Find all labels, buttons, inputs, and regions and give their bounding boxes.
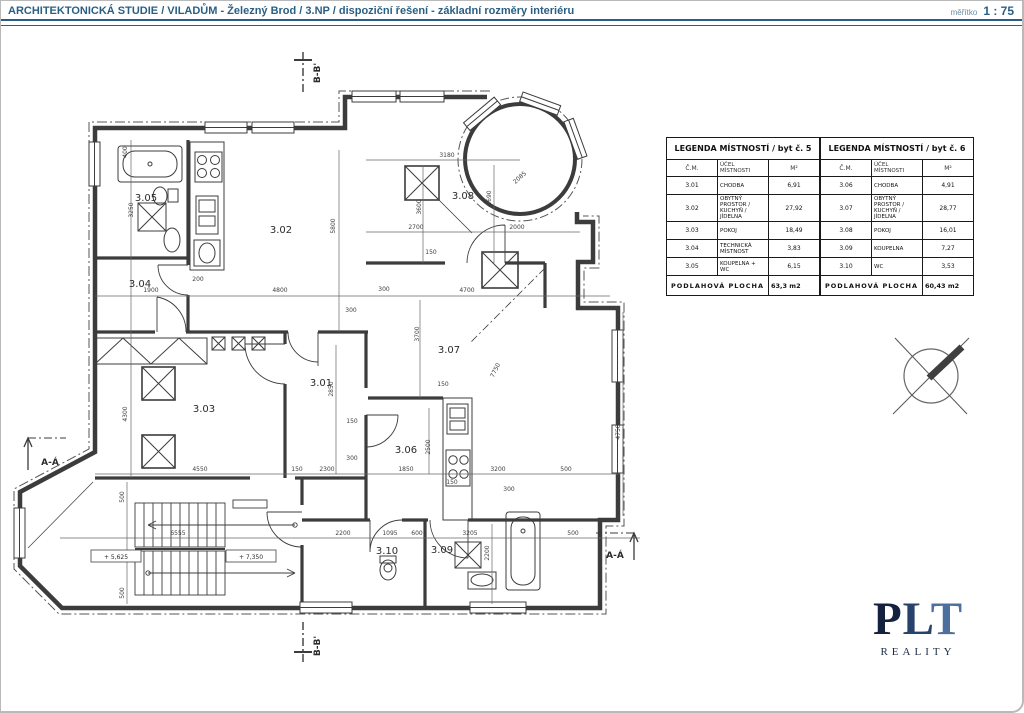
legend-row: 3.04TECHNICKÁ MÍSTNOST3,83 (667, 240, 820, 258)
washbasin (164, 228, 180, 252)
room-number: 3.02 (667, 195, 718, 222)
north-arrow (893, 338, 969, 414)
legend-col-m2: M² (923, 160, 974, 177)
dim-label: 150 (291, 466, 303, 473)
dim-label: 150 (446, 479, 458, 486)
room-area: 3,83 (769, 240, 820, 258)
level-label: + 7,350 (239, 554, 263, 561)
room-number: 3.05 (667, 258, 718, 276)
room-area: 6,15 (769, 258, 820, 276)
wardrobe (95, 338, 207, 364)
room-area: 18,49 (769, 222, 820, 240)
fixtures (95, 142, 545, 590)
dim-label: 2300 (319, 466, 334, 473)
legend-footer-label: PODLAHOVÁ PLOCHA (821, 276, 923, 296)
legend-col-use: ÚČEL MÍSTNOSTI (718, 160, 769, 177)
dim-label: 3205 (462, 530, 477, 537)
page: ARCHITEKTONICKÁ STUDIE / VILADŮM - Želez… (0, 0, 1024, 713)
room-area: 6,91 (769, 177, 820, 195)
room-label: 3.09 (431, 545, 453, 556)
dim-label: 150 (346, 418, 358, 425)
dim-label: 4800 (272, 287, 287, 294)
dim-label: 2700 (408, 224, 423, 231)
room-use: KOUPELNA (872, 240, 923, 258)
room-number: 3.10 (821, 258, 872, 276)
dim-label: 7750 (489, 362, 502, 379)
room-label: 3.08 (452, 191, 474, 202)
plt-logo: PLT REALITY (858, 594, 978, 658)
legend-col-use: ÚČEL MÍSTNOSTI (872, 160, 923, 177)
dim-label: 1900 (143, 287, 158, 294)
dim-label: 3700 (414, 326, 421, 341)
dim-label: 300 (346, 455, 358, 462)
dim-label: 6555 (170, 530, 185, 537)
legend-table-byt-5: LEGENDA MÍSTNOSTÍ / byt č. 5Č.M.ÚČEL MÍS… (666, 137, 820, 296)
dim-label: 5800 (330, 218, 337, 233)
logo-letter: L (903, 593, 931, 645)
legend-row: 3.03POKOJ18,49 (667, 222, 820, 240)
room-area: 3,53 (923, 258, 974, 276)
room-label: 3.07 (438, 345, 460, 356)
dim-label: 500 (119, 491, 126, 503)
room-use: CHODBA (872, 177, 923, 195)
room-area: 27,92 (769, 195, 820, 222)
legend-row: 3.05KOUPELNA + WC6,15 (667, 258, 820, 276)
dim-label: 4550 (192, 466, 207, 473)
dim-label: 500 (119, 587, 126, 599)
dim-label: 500 (560, 466, 572, 473)
legend-footer-value: 60,43 m2 (923, 276, 974, 296)
dim-label: 300 (345, 307, 357, 314)
dim-label: 4750 (615, 424, 622, 439)
legend-col-cm: Č.M. (821, 160, 872, 177)
dim-label: 2200 (335, 530, 350, 537)
room-number: 3.07 (821, 195, 872, 222)
dim-label: 2200 (484, 545, 491, 560)
room-legend: LEGENDA MÍSTNOSTÍ / byt č. 5Č.M.ÚČEL MÍS… (666, 137, 974, 296)
section-label: B-B' (313, 636, 323, 656)
dim-label: 400 (122, 146, 129, 158)
dim-label: 2850 (328, 381, 335, 396)
legend-row: 3.02OBYTNÝ PROSTOR / KUCHYŇ / JÍDELNA27,… (667, 195, 820, 222)
dim-label: 2000 (509, 224, 524, 231)
room-label: 3.10 (376, 546, 398, 557)
legend-row: 3.07OBYTNÝ PROSTOR / KUCHYŇ / JÍDELNA28,… (821, 195, 974, 222)
legend-row: 3.10WC3,53 (821, 258, 974, 276)
dim-label: 150 (437, 381, 449, 388)
dim-label: 3180 (439, 152, 454, 159)
plt-logo-text: PLT (858, 594, 978, 644)
dim-label: 600 (411, 530, 423, 537)
level-label: + 5,625 (104, 554, 128, 561)
legend-col-m2: M² (769, 160, 820, 177)
dim-label: 4700 (459, 287, 474, 294)
section-label: A-Á (606, 549, 624, 561)
room-number: 3.03 (667, 222, 718, 240)
room-use: KOUPELNA + WC (718, 258, 769, 276)
room-area: 28,77 (923, 195, 974, 222)
room-use: POKOJ (872, 222, 923, 240)
legend-col-cm: Č.M. (667, 160, 718, 177)
staircase (28, 482, 297, 595)
room-use: WC (872, 258, 923, 276)
room-label: 3.03 (193, 404, 215, 415)
room-use: CHODBA (718, 177, 769, 195)
section-label: B-B' (313, 63, 323, 83)
room-use: OBYTNÝ PROSTOR / KUCHYŇ / JÍDELNA (872, 195, 923, 222)
room-number: 3.06 (821, 177, 872, 195)
logo-letter: P (873, 593, 903, 645)
room-label: 3.06 (395, 445, 417, 456)
room-area: 16,01 (923, 222, 974, 240)
plt-logo-subtitle: REALITY (858, 646, 978, 658)
room-use: TECHNICKÁ MÍSTNOST (718, 240, 769, 258)
dim-label: 2690 (486, 190, 493, 205)
room-number: 3.01 (667, 177, 718, 195)
dim-label: 300 (503, 486, 515, 493)
dim-label: 3250 (128, 202, 135, 217)
legend-footer-label: PODLAHOVÁ PLOCHA (667, 276, 769, 296)
legend-row: 3.09KOUPELNA7,27 (821, 240, 974, 258)
room-number: 3.08 (821, 222, 872, 240)
legend-row: 3.01CHODBA6,91 (667, 177, 820, 195)
room-label: 3.05 (135, 193, 157, 204)
legend-row: 3.08POKOJ16,01 (821, 222, 974, 240)
room-label: 3.02 (270, 225, 292, 236)
dim-label: 2500 (425, 439, 432, 454)
legend-row: 3.06CHODBA4,91 (821, 177, 974, 195)
dim-label: 4300 (122, 406, 129, 421)
dim-label: 300 (378, 286, 390, 293)
dim-label: 3200 (490, 466, 505, 473)
legend-table-byt-6: LEGENDA MÍSTNOSTÍ / byt č. 6Č.M.ÚČEL MÍS… (820, 137, 974, 296)
dim-label: 1850 (398, 466, 413, 473)
logo-letter: T (931, 593, 963, 645)
dim-label: 3600 (416, 199, 423, 214)
legend-title: LEGENDA MÍSTNOSTÍ / byt č. 6 (821, 138, 974, 160)
room-area: 7,27 (923, 240, 974, 258)
room-number: 3.04 (667, 240, 718, 258)
room-number: 3.09 (821, 240, 872, 258)
dim-label: 200 (192, 276, 204, 283)
legend-title: LEGENDA MÍSTNOSTÍ / byt č. 5 (667, 138, 820, 160)
dim-label: 500 (567, 530, 579, 537)
room-area: 4,91 (923, 177, 974, 195)
kitchen-sink (194, 240, 220, 266)
dim-label: 150 (425, 249, 437, 256)
room-use: OBYTNÝ PROSTOR / KUCHYŇ / JÍDELNA (718, 195, 769, 222)
legend-footer-value: 63,3 m2 (769, 276, 820, 296)
dim-label: 1095 (382, 530, 397, 537)
section-label: A-Á (41, 456, 59, 468)
room-use: POKOJ (718, 222, 769, 240)
